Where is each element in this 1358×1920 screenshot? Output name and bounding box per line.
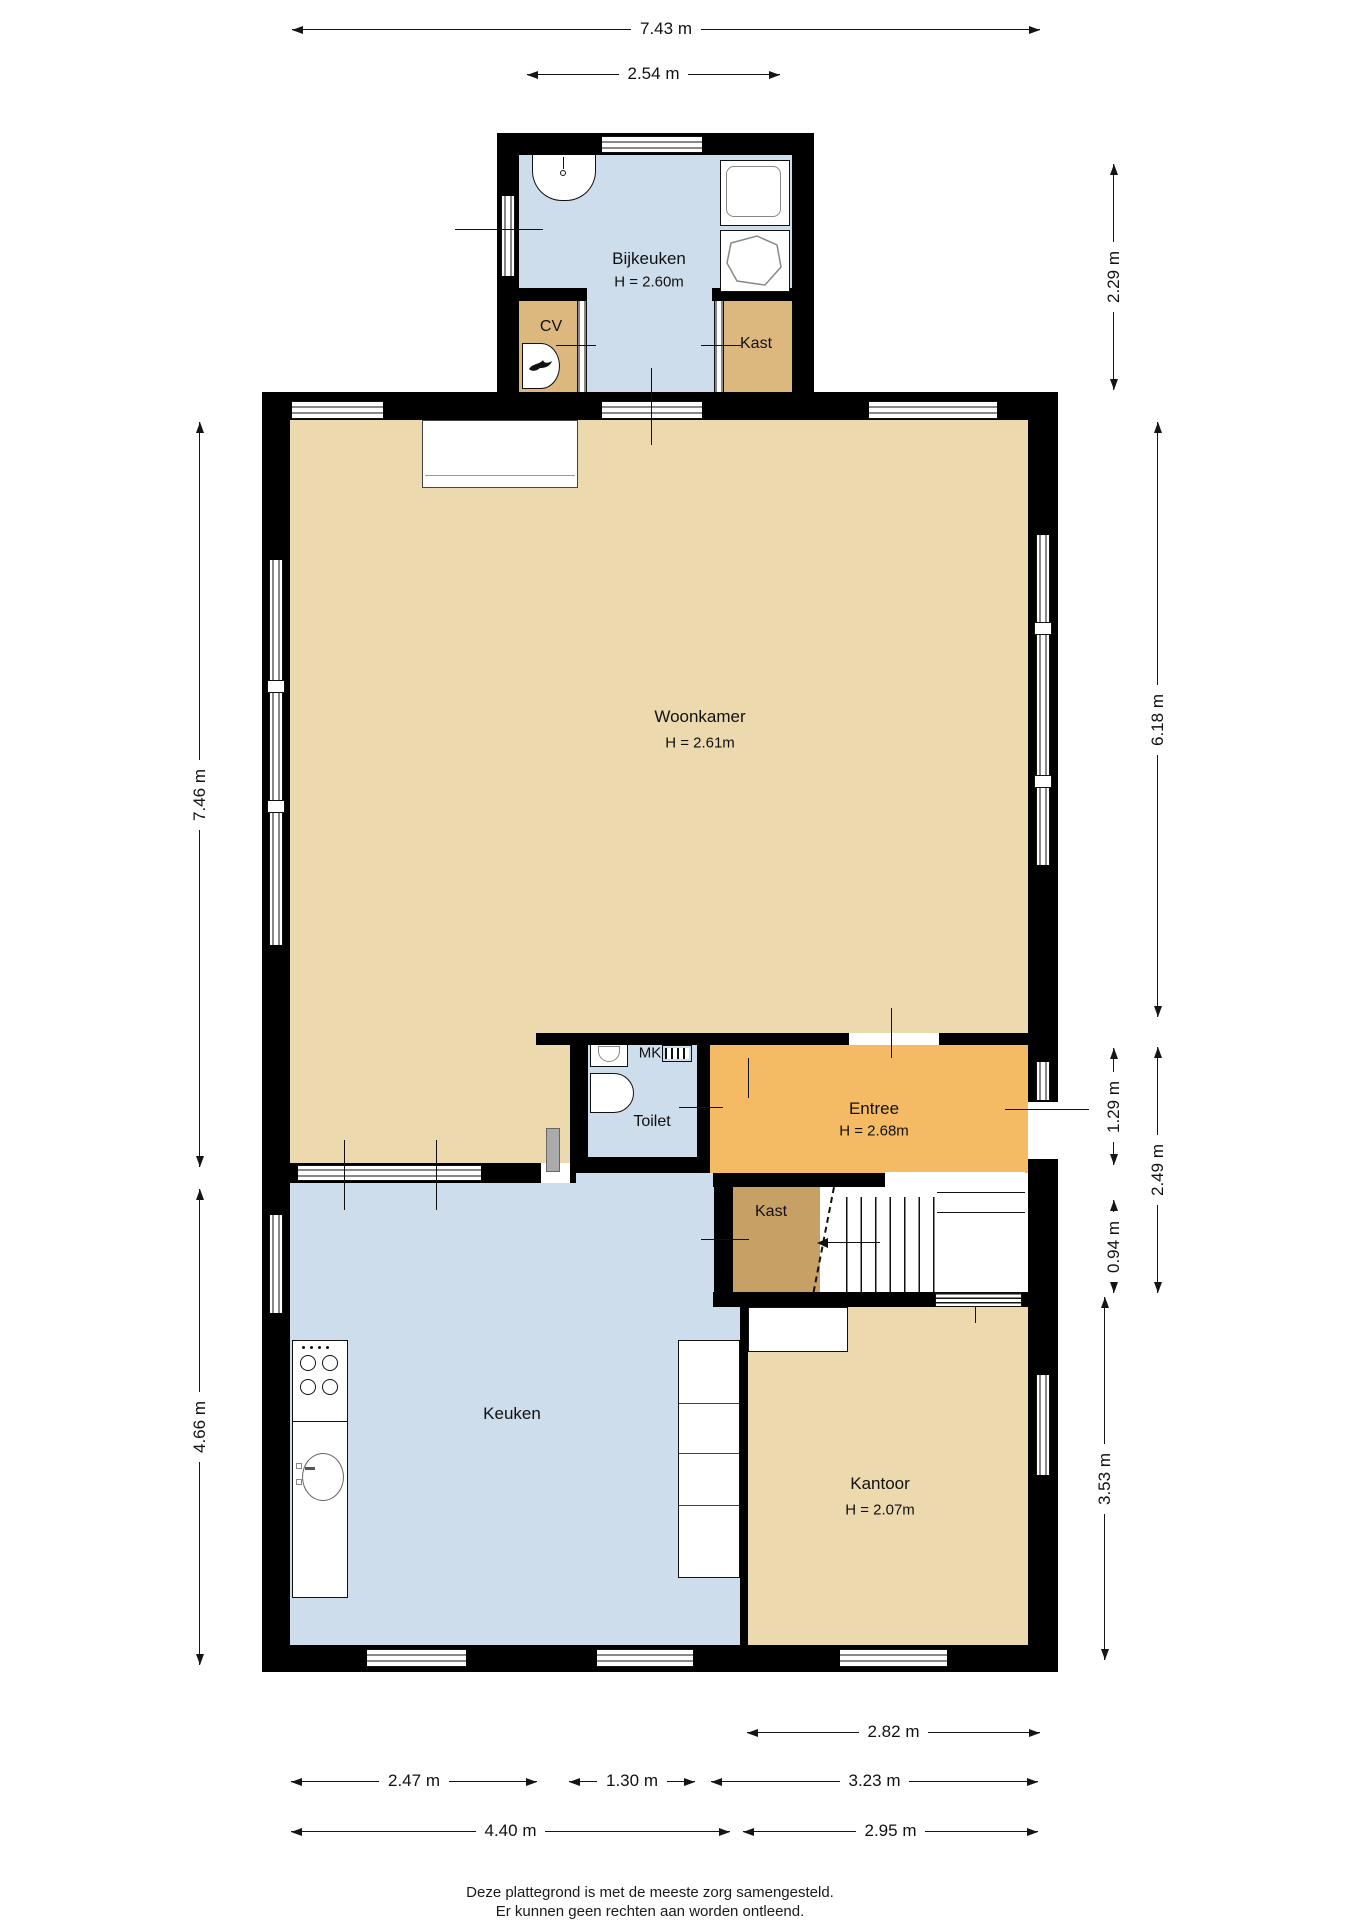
window-kantoor-onder: [840, 1649, 947, 1667]
label-kast-boven: Kast: [740, 335, 772, 353]
deur-bijkeuken-woonkamer: [602, 401, 702, 419]
raam-boven-trap: [935, 1292, 1022, 1307]
label-bijkeuken-hoogte: H = 2.60m: [614, 274, 684, 291]
label-woonkamer: Woonkamer: [654, 707, 745, 727]
label-kast-hal: Kast: [755, 1203, 787, 1221]
dim-right-entree: 1.29 m: [1113, 1048, 1114, 1165]
kitchen-counter-right: [678, 1340, 740, 1578]
window-mullion: [267, 680, 285, 693]
window-bijkeuken-links: [501, 196, 515, 276]
label-toilet: Toilet: [633, 1113, 670, 1131]
voordeur-opening: [1028, 1102, 1058, 1159]
window-kantoor-rechts: [1036, 1375, 1050, 1475]
dim-right-woonkamer: 6.18 m: [1157, 422, 1158, 1017]
partition-cv: [577, 301, 587, 392]
dim-label: 2.95 m: [856, 1821, 926, 1841]
dim-label: 1.30 m: [597, 1771, 667, 1791]
dim-bottom-midden: 1.30 m: [569, 1781, 695, 1782]
dim-bottom-rechts-totaal: 2.95 m: [743, 1831, 1038, 1832]
deur-tick-kast-hal: [701, 1239, 749, 1240]
window-keuken-onder-2: [597, 1649, 693, 1667]
dim-left-woonkamer: 7.46 m: [199, 422, 200, 1167]
deur-tick-mk: [748, 1058, 749, 1098]
wall-woonkamer-zuid: [536, 1033, 1036, 1045]
dim-label: 2.29 m: [1104, 242, 1124, 312]
label-entree-hoogte: H = 2.68m: [839, 1123, 909, 1140]
toilet-bowl-icon: [590, 1073, 634, 1113]
dim-label: 7.43 m: [631, 19, 701, 39]
dim-label: 2.82 m: [859, 1722, 929, 1742]
dim-label: 3.23 m: [840, 1771, 910, 1791]
deur-tick-ensuite-1: [344, 1140, 345, 1210]
deur-tick-woonkamer-entree: [891, 1008, 892, 1058]
meterkast-icon: [662, 1045, 692, 1062]
window-woonkamer-rechts: [1036, 535, 1050, 865]
ensuite-deuren: [298, 1165, 481, 1181]
stairs-landing-line: [937, 1192, 1025, 1193]
wall-toilet-onder: [570, 1157, 710, 1173]
label-kantoor-hoogte: H = 2.07m: [845, 1502, 915, 1519]
wall-toilet-rechts: [697, 1045, 710, 1172]
window-keuken-links: [269, 1215, 283, 1313]
wall-kast-hal-links: [714, 1187, 733, 1293]
dim-right-bijkeuken: 2.29 m: [1113, 164, 1114, 390]
kitchen-sink-icon: [302, 1453, 344, 1501]
wall-annex-right: [792, 133, 814, 392]
cooktop-icon: [293, 1341, 346, 1421]
dim-label: 7.46 m: [190, 760, 210, 830]
dim-bottom-kantoor-boven: 2.82 m: [747, 1732, 1040, 1733]
dim-right-entree-total: 2.49 m: [1157, 1047, 1158, 1293]
dim-bottom-keuken-links: 2.47 m: [291, 1781, 537, 1782]
label-entree: Entree: [849, 1099, 899, 1119]
partition-kast-boven: [714, 301, 724, 392]
dim-label: 4.40 m: [476, 1821, 546, 1841]
window-entree-rechts: [1036, 1062, 1050, 1100]
washing-machine-icon: [720, 160, 790, 226]
kast-kantoor: [748, 1307, 848, 1352]
window-woonkamer-links: [269, 560, 283, 945]
stairs-arrow-line: [826, 1242, 880, 1243]
kitchen-counter-left: [292, 1340, 348, 1598]
dim-label: 6.18 m: [1148, 685, 1168, 755]
dim-label: 2.49 m: [1148, 1135, 1168, 1205]
dim-top-total: 7.43 m: [292, 29, 1040, 30]
window-mullion: [1034, 775, 1052, 788]
dim-right-kantoor: 3.53 m: [1104, 1297, 1105, 1660]
dim-label: 2.47 m: [379, 1771, 449, 1791]
deur-tick-voordeur: [1005, 1109, 1089, 1110]
dim-label: 4.66 m: [190, 1392, 210, 1462]
label-bijkeuken: Bijkeuken: [612, 249, 686, 269]
dim-bottom-kantoor: 3.23 m: [711, 1781, 1038, 1782]
wall-trapraam-rechts: [1020, 1292, 1034, 1307]
stairs-arrow-icon: [817, 1238, 828, 1248]
wall-entree-onder: [713, 1173, 885, 1187]
dim-top-bijkeuken: 2.54 m: [527, 74, 780, 75]
schouw-niche: [422, 420, 578, 488]
laundry-basket-icon: [720, 230, 790, 292]
deur-tick-bijkeuken-zij: [455, 229, 543, 230]
label-keuken: Keuken: [483, 1404, 541, 1424]
fontein-toilet: [590, 1045, 628, 1067]
disclaimer: Deze plattegrond is met de meeste zorg s…: [150, 1883, 1150, 1920]
window-keuken-onder-1: [367, 1649, 466, 1667]
dim-left-keuken: 4.66 m: [199, 1189, 200, 1665]
dim-label: 3.53 m: [1095, 1444, 1115, 1514]
wall-toilet-links: [570, 1033, 588, 1172]
wall-onder-trap: [713, 1292, 937, 1307]
deur-tick-bijkeuken-woonkamer: [651, 368, 652, 445]
label-kantoor: Kantoor: [850, 1474, 910, 1494]
label-woonkamer-hoogte: H = 2.61m: [665, 735, 735, 752]
dim-label: 2.54 m: [619, 64, 689, 84]
deur-tick-ensuite-2: [436, 1140, 437, 1210]
deur-tick-cv: [556, 345, 596, 346]
deurblad: [546, 1128, 560, 1172]
deur-tick-toilet: [679, 1107, 723, 1108]
window-mullion: [267, 800, 285, 813]
label-cv: CV: [540, 318, 562, 336]
deur-tick-kast-boven: [701, 345, 741, 346]
tap-icon: [560, 170, 566, 176]
dim-bottom-links-totaal: 4.40 m: [291, 1831, 730, 1832]
stairs-landing-line: [937, 1212, 1025, 1213]
cv-boiler-icon: [522, 343, 560, 389]
tap-icon: [563, 157, 564, 169]
window-woonkamer-top-rechts: [869, 401, 997, 419]
floor-plan: Bijkeuken H = 2.60m CV Kast Woonkamer H …: [0, 0, 1358, 1920]
opening-woonkamer-entree: [849, 1033, 939, 1045]
window-bijkeuken-top: [602, 136, 702, 153]
window-mullion: [1034, 622, 1052, 635]
label-mk: MK: [639, 1045, 662, 1062]
stairs-treads: [833, 1197, 937, 1292]
disclaimer-line1: Deze plattegrond is met de meeste zorg s…: [150, 1883, 1150, 1902]
dim-right-trap: 0.94 m: [1113, 1200, 1114, 1293]
wall-kantoor-links: [740, 1307, 748, 1645]
wall-cv-top: [497, 288, 587, 301]
tick-raam-trap: [975, 1307, 976, 1323]
disclaimer-line2: Er kunnen geen rechten aan worden ontlee…: [150, 1902, 1150, 1920]
dim-label: 1.29 m: [1104, 1072, 1124, 1142]
window-woonkamer-top-links: [292, 401, 383, 419]
dim-label: 0.94 m: [1104, 1212, 1124, 1282]
